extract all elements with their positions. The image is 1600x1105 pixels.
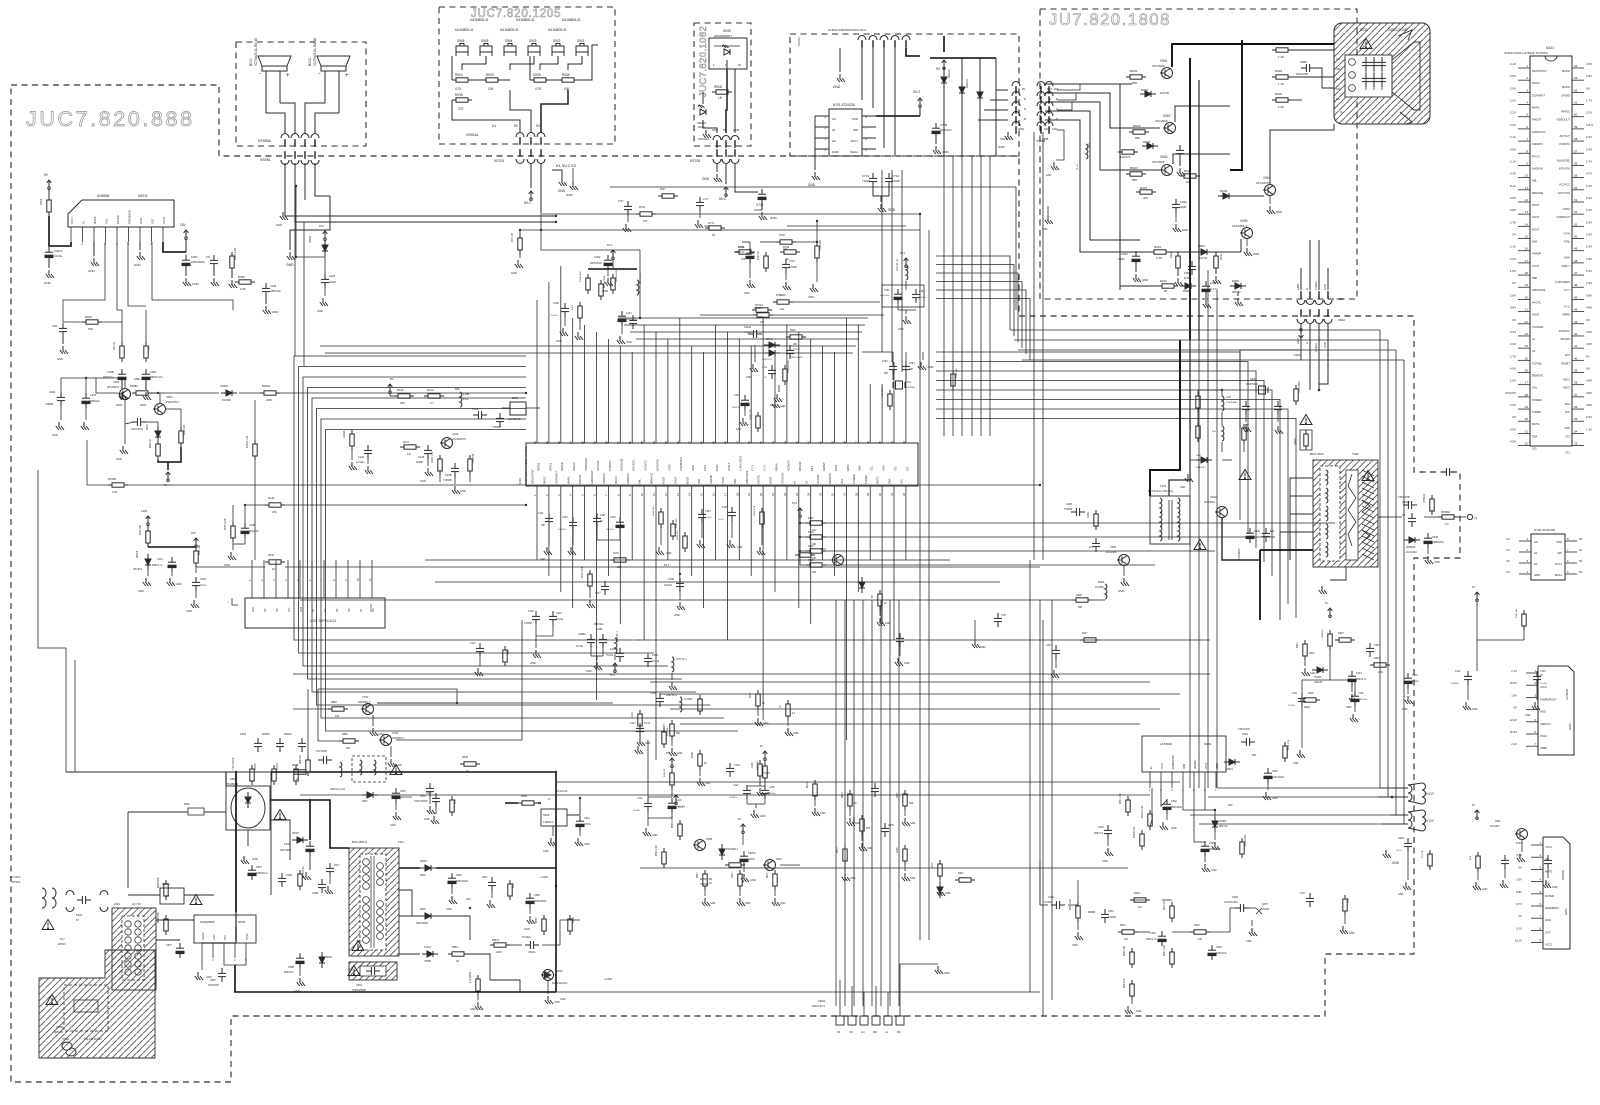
svg-text:XT2: XT2 [1565,434,1570,438]
svg-text:R913: R913 [1160,279,1167,283]
svg-text:REM: REM [733,128,740,132]
svg-text:18P: 18P [541,525,546,527]
svg-text:37: 37 [854,441,858,445]
svg-text:GND: GND [566,193,574,197]
svg-text:0V: 0V [1586,318,1590,322]
svg-text:0V/4.6V: 0V/4.6V [1505,391,1516,395]
svg-text:GND: GND [666,552,672,555]
svg-text:38: 38 [842,441,846,445]
svg-text:YC-Y: YC-Y [751,465,755,471]
svg-text:34: 34 [1574,429,1578,433]
svg-text:TLN0528A: TLN0528A [1226,401,1237,404]
svg-text:46: 46 [1574,283,1578,287]
svg-text:RN01: RN01 [1130,69,1138,73]
svg-text:YD75x03-01-5W-16: YD75x03-01-5W-16 [313,38,317,66]
svg-text:GND: GND [652,834,658,837]
svg-text:GND: GND [213,934,216,940]
svg-text:C142: C142 [1455,671,1461,673]
svg-text:VDD: VDD [852,117,859,121]
svg-text:HPM3800017: HPM3800017 [714,34,733,38]
svg-text:L7805CV: L7805CV [543,821,554,824]
svg-text:D16V1000u: D16V1000u [1272,777,1285,779]
svg-text:GND: GND [511,271,517,275]
svg-text:A2B1: A2B1 [1296,283,1300,290]
svg-text:60: 60 [581,441,585,445]
svg-text:GND: GND [1293,762,1299,765]
svg-text:R147 182: R147 182 [1516,608,1518,618]
svg-text:C704: C704 [909,363,915,365]
svg-text:GND: GND [446,908,452,911]
svg-text:GND: GND [460,489,466,493]
svg-text:59: 59 [1574,125,1578,129]
svg-text:V913: V913 [776,858,782,861]
svg-text:42: 42 [795,441,799,445]
svg-text:2.1V: 2.1V [1511,742,1517,746]
svg-text:SCL: SCL [900,478,904,484]
svg-text:17: 17 [723,492,727,496]
svg-text:D4B0V4.7: D4B0V4.7 [1196,467,1207,469]
svg-text:C25B: C25B [107,370,114,374]
svg-text:GND: GND [645,742,651,745]
svg-text:220K: 220K [266,398,272,402]
svg-text:5V: 5V [1325,602,1328,605]
svg-text:58: 58 [604,441,608,445]
svg-text:IFVCC: IFVCC [1532,154,1540,158]
svg-text:SDA: SDA [888,478,892,484]
svg-text:GND: GND [745,902,751,905]
svg-text:D50?: D50? [362,800,368,803]
svg-text:47: 47 [735,441,739,445]
svg-text:C00: C00 [52,324,58,328]
svg-text:IN: IN [82,221,86,224]
svg-text:GND: GND [1246,940,1252,943]
svg-text:G: G [1056,108,1058,111]
svg-text:R55?: R55? [536,917,538,923]
svg-text:FMOUT: FMOUT [578,474,582,484]
svg-text:9V: 9V [1022,87,1026,91]
svg-text:D400V100u: D400V100u [400,797,413,799]
svg-text:B: B [1024,117,1026,121]
svg-text:JU7.820.1808: JU7.820.1808 [1049,11,1171,29]
svg-text:GND: GND [702,177,710,181]
svg-text:W: W [738,63,741,67]
svg-text:GND: GND [1323,342,1327,348]
svg-text:S231: S231 [1360,28,1368,32]
svg-text:LQ-Y16: LQ-Y16 [132,903,141,906]
svg-text:63: 63 [1574,76,1578,80]
svg-text:R935: R935 [455,93,463,97]
svg-text:GND-Y: GND-Y [1562,264,1571,268]
svg-text:N701 AT24C08: N701 AT24C08 [833,103,855,107]
svg-text:61: 61 [569,441,573,445]
svg-text:680: 680 [1132,178,1137,182]
svg-text:R126 1.2K: R126 1.2K [431,451,434,463]
svg-text:D50V10u: D50V10u [249,531,259,533]
svg-text:GND: GND [1310,672,1316,675]
svg-text:R109 56: R109 56 [664,768,666,777]
svg-text:GND: GND [138,589,144,593]
svg-text:36: 36 [1574,405,1578,409]
svg-text:RFAGC: RFAGC [572,462,576,471]
svg-text:4.7: 4.7 [430,401,434,405]
svg-text:15K: 15K [88,327,93,331]
svg-text:C50?: C50? [256,866,263,869]
svg-text:MBANCE: MBANCE [1532,191,1543,195]
svg-text:SCL: SCL [1532,447,1538,451]
svg-text:41: 41 [1574,344,1578,348]
svg-text:5V: 5V [390,377,394,381]
svg-text:51: 51 [1574,222,1578,226]
svg-text:L501: L501 [114,902,120,906]
svg-text:0.8V: 0.8V [1586,293,1592,297]
svg-text:X602: X602 [1338,318,1345,322]
svg-text:SNDAPC: SNDAPC [602,473,606,484]
svg-text:IN: IN [1151,766,1153,769]
svg-text:GND: GND [1525,714,1531,717]
svg-text:LA78040: LA78040 [1565,688,1569,700]
svg-text:KA1M805-41: KA1M805-41 [455,28,474,32]
svg-text:TUNER: TUNER [864,475,868,484]
svg-text:1K: 1K [884,603,887,605]
svg-text:R?1 1K: R?1 1K [1422,850,1424,858]
svg-text:H/BUSNCE: H/BUSNCE [745,470,749,484]
svg-text:SCFINPUT: SCFINPUT [554,471,558,484]
svg-text:SIFOUTPUT: SIFOUTPUT [1532,69,1547,73]
svg-text:N301: N301 [1568,723,1572,730]
svg-text:VC302: VC302 [1262,908,1270,911]
svg-text:R42A: R42A [1304,706,1310,709]
svg-text:32V: 32V [191,531,196,535]
svg-text:R719 180: R719 180 [956,368,958,378]
svg-text:D50V47u: D50V47u [284,972,294,974]
svg-text:GND: GND [1276,210,1282,214]
svg-text:C436: C436 [1254,530,1261,533]
svg-text:WDR7L 6B: WDR7L 6B [700,878,712,881]
svg-text:D50V100u: D50V100u [1171,807,1183,809]
svg-text:R583: R583 [521,795,527,798]
svg-text:L105: L105 [463,392,469,396]
svg-text:S905: S905 [481,39,489,43]
svg-text:VD40: VD40 [556,969,563,973]
svg-text:R751B 150K: R751B 150K [788,360,790,373]
svg-text:L0-7u: L0-7u [718,519,724,521]
svg-text:5V: 5V [514,124,519,128]
svg-text:14: 14 [1525,222,1529,226]
svg-text:NC: NC [276,608,279,612]
svg-text:D50V0.47u: D50V0.47u [150,376,163,379]
svg-text:R008C: R008C [130,384,138,388]
svg-text:2.4V: 2.4V [1586,245,1592,249]
svg-text:C111: C111 [1292,693,1298,695]
svg-text:RN51C: RN51C [284,733,292,736]
svg-text:2.9V: 2.9V [1510,86,1516,90]
svg-text:C713: C713 [862,174,870,178]
svg-text:C534: C534 [420,795,426,798]
svg-text:NE: NE [336,608,339,612]
svg-text:C709: C709 [738,246,744,249]
svg-text:TUNER: TUNER [1532,410,1541,414]
svg-text:3.8V: 3.8V [1586,342,1592,346]
svg-text:43: 43 [783,441,787,445]
svg-text:DPGND: DPGND [1561,337,1570,341]
svg-text:1000P: 1000P [754,208,763,212]
svg-text:10K: 10K [335,715,340,718]
svg-text:N945: N945 [723,29,731,33]
svg-text:C105: C105 [610,517,616,519]
svg-text:2.4V: 2.4V [1586,269,1592,273]
svg-text:SCFINPUT: SCFINPUT [1532,93,1545,97]
svg-text:C103: C103 [562,517,568,519]
svg-text:GND: GND [584,843,590,846]
svg-text:GND: GND [1346,706,1352,709]
svg-text:PUMPUPOUT: PUMPUPOUT [1173,754,1175,769]
svg-text:C71?: C71? [703,199,709,201]
svg-text:40: 40 [819,441,823,445]
svg-text:R43B 2.2K: R43B 2.2K [750,409,752,420]
svg-text:R127: R127 [403,440,410,444]
svg-text:D50V10u: D50V10u [270,289,281,293]
svg-text:BSC-60J2: BSC-60J2 [1310,452,1324,456]
svg-text:SCL1: SCL1 [850,139,858,143]
svg-text:2.4V: 2.4V [1586,147,1592,151]
svg-text:2.5V: 2.5V [1586,257,1592,261]
svg-text:A2: A2 [1534,562,1538,566]
svg-text:VEROUT: VEROUT [1195,759,1197,769]
svg-text:40K7D: 40K7D [1232,290,1241,294]
svg-text:GND: GND [140,403,146,407]
svg-text:C52A: C52A [1242,733,1248,736]
svg-text:0V: 0V [1512,415,1516,419]
svg-text:ROUT: ROUT [662,476,666,484]
svg-text:4.8V: 4.8V [1586,391,1592,395]
svg-text:AUDIOIN: AUDIOIN [1532,166,1543,170]
svg-text:AN5268: AN5268 [97,194,109,198]
svg-text:−: − [318,71,321,77]
svg-text:+130V: +130V [540,875,548,879]
svg-text:T0.05u: T0.05u [633,810,641,812]
svg-text:R918: R918 [1275,69,1283,73]
svg-text:BCT-51JU4 739-0311: BCT-51JU4 739-0311 [1148,489,1173,493]
svg-text:2.1V: 2.1V [1511,669,1517,673]
svg-text:S903: S903 [529,39,537,43]
svg-text:IFVCC: IFVCC [614,476,618,484]
svg-text:DGIN: DGIN [715,464,719,471]
svg-text:GND: GND [898,328,904,331]
svg-text:AVB: AVB [1532,240,1537,244]
svg-text:53: 53 [1574,198,1578,202]
svg-text:ZD4V1Z: ZD4V1Z [1219,826,1228,828]
svg-text:3P: 3P [600,521,603,523]
svg-text:GND: GND [556,340,562,343]
svg-text:5V-1: 5V-1 [607,243,613,247]
svg-text:38: 38 [1574,381,1578,385]
svg-text:VCOVCC: VCOVCC [644,460,648,471]
svg-text:330P: 330P [1180,205,1187,209]
svg-text:180K: 180K [134,377,140,381]
svg-text:BOUT: BOUT [685,476,689,484]
svg-text:5V: 5V [1579,537,1583,541]
svg-text:B002: B002 [308,58,312,66]
svg-text:C301: C301 [1098,826,1104,829]
svg-text:T202P: T202P [862,179,870,183]
svg-text:G1: G1 [1336,57,1340,61]
svg-text:GND: GND [52,433,58,437]
svg-text:57: 57 [616,441,620,445]
svg-text:GND: GND [1349,932,1355,935]
svg-text:V DY: V DY [1426,819,1435,823]
svg-text:VDD: VDD [882,465,886,471]
svg-text:H DY: H DY [1426,792,1435,796]
svg-text:42: 42 [1574,332,1578,336]
svg-text:L1: L1 [885,1030,889,1034]
svg-text:GND: GND [252,857,258,861]
svg-text:2.2V: 2.2V [1510,111,1516,115]
svg-text:C110: C110 [1358,693,1364,695]
svg-text:T2200P: T2200P [789,267,798,269]
svg-text:FR401: FR401 [1294,437,1297,445]
svg-text:VD52?: VD52? [420,860,428,863]
svg-text:H: H [1305,288,1309,290]
svg-text:R004: R004 [39,198,43,205]
svg-text:JUC7.820.1082: JUC7.820.1082 [698,26,709,97]
svg-text:T0.0?: T0.0? [764,773,771,775]
svg-text:62: 62 [1574,88,1578,92]
svg-text:VCC1: VCC1 [1162,762,1164,769]
svg-text:26: 26 [831,492,835,496]
svg-text:T0.01u: T0.01u [705,517,713,519]
svg-text:C50B: C50B [288,966,294,969]
svg-text:0V: 0V [1507,570,1511,574]
svg-text:C50u: C50u [1118,257,1125,261]
svg-text:R614: R614 [807,782,809,788]
svg-text:AUDIOIN: AUDIOIN [626,473,630,484]
svg-text:R547 2.2K: R547 2.2K [656,845,658,856]
svg-text:IFAGC: IFAGC [1532,81,1540,85]
svg-text:C70?: C70? [1001,615,1007,617]
svg-text:5.3V: 5.3V [1586,196,1592,200]
svg-text:AVB: AVB [697,479,701,484]
svg-text:DF3N2: DF3N2 [536,462,540,471]
svg-text:GND: GND [390,824,396,827]
svg-text:2SA1015-Y: 2SA1015-Y [1232,224,1247,228]
svg-text:SYNC: SYNC [246,933,249,940]
svg-text:100K: 100K [496,951,502,954]
svg-text:GND: GND [176,583,182,586]
svg-text:CHD4T1301-LA76931 7C-53K3: CHD4T1301-LA76931 7C-53K3 [1504,51,1548,55]
svg-text:VCC2: VCC2 [1545,943,1552,947]
svg-text:GOUT: GOUT [673,476,677,484]
svg-text:R813: R813 [837,847,839,853]
svg-text:C308: C308 [1232,896,1238,899]
svg-text:D50V10u: D50V10u [880,295,890,297]
svg-text:30P: 30P [909,369,914,371]
svg-text:GND: GND [855,822,861,825]
svg-text:64: 64 [1574,64,1578,68]
svg-text:54: 54 [652,441,656,445]
svg-text:XT1: XT1 [905,466,909,471]
svg-text:26: 26 [1525,369,1529,373]
svg-text:V903: V903 [1160,155,1168,159]
svg-text:AFCFIL: AFCFIL [1532,300,1541,304]
svg-text:H/BUSNCE: H/BUSNCE [1532,288,1546,292]
svg-text:GND: GND [1272,797,1278,800]
svg-text:FILT: FILT [810,465,814,471]
svg-text:R54B: R54B [292,764,299,767]
svg-text:26V: 26V [1228,803,1233,807]
svg-text:54: 54 [1574,186,1578,190]
svg-text:2.5V: 2.5V [1510,74,1516,78]
svg-text:R545: R545 [462,756,469,759]
svg-text:XT1: XT1 [1565,451,1570,455]
svg-text:SCL: SCL [870,465,874,471]
svg-text:R746: R746 [776,294,782,297]
svg-text:GND: GND [904,662,910,665]
svg-text:2PC1815Y: 2PC1815Y [107,385,120,389]
svg-text:8.7V: 8.7V [1516,902,1522,906]
svg-text:270: 270 [643,220,648,223]
svg-text:30: 30 [878,492,882,496]
svg-text:DRAIN: DRAIN [202,932,205,940]
svg-text:C505: C505 [240,733,247,736]
svg-text:R726: R726 [639,206,646,209]
svg-text:4.9V: 4.9V [1510,427,1516,431]
svg-text:SDA1: SDA1 [1555,573,1563,577]
svg-text:0V: 0V [1512,318,1516,322]
svg-text:GND: GND [1323,284,1327,290]
svg-text:100: 100 [783,248,788,251]
svg-text:2.8V: 2.8V [1510,196,1516,200]
svg-text:C?1?: C?1? [1300,893,1306,895]
svg-text:51K: 51K [1198,938,1203,941]
svg-text:D906: D906 [1232,279,1239,283]
svg-text:R405: R405 [1076,594,1082,597]
svg-text:R: R [1024,97,1026,101]
svg-text:L0-?u: L0-?u [1396,850,1402,852]
svg-text:MHFIL: MHFIL [1532,106,1540,110]
svg-text:R881: R881 [331,701,337,704]
svg-text:56: 56 [1574,161,1578,165]
svg-text:R587A: R587A [492,939,500,942]
svg-text:C526: C526 [456,874,462,877]
svg-text:33: 33 [1574,442,1578,446]
svg-text:15K: 15K [272,510,277,514]
svg-text:KG: KG [1336,97,1341,101]
svg-text:40: 40 [1574,356,1578,360]
svg-text:2SC2500: 2SC2500 [1152,64,1165,68]
svg-text:GND: GND [424,818,430,821]
svg-text:GND: GND [1184,764,1186,769]
svg-text:T500V1800P: T500V1800P [790,357,803,359]
svg-text:V0521: V0521 [1226,768,1234,771]
svg-text:C126: C126 [472,407,479,411]
svg-text:25: 25 [1525,356,1529,360]
svg-text:5V-2: 5V-2 [900,252,906,255]
svg-text:56: 56 [628,441,632,445]
svg-text:C107: C107 [556,612,562,615]
svg-text:R771 3K: R771 3K [512,233,514,242]
svg-text:25.5V: 25.5V [1510,681,1517,685]
svg-text:VOUT: VOUT [721,476,725,484]
svg-text:CHD4T1301-LA76931 7C-53K3: CHD4T1301-LA76931 7C-53K3 [524,447,528,485]
svg-text:D220Du: D220Du [729,797,738,799]
svg-text:GND: GND [530,662,536,665]
svg-text:R118 100K: R118 100K [580,271,582,282]
svg-text:0V: 0V [1507,559,1511,563]
svg-text:18: 18 [735,492,739,496]
svg-text:VOUT: VOUT [1532,264,1540,268]
svg-text:PL-1: PL-1 [463,397,469,401]
svg-text:RESET: RESET [822,462,826,471]
